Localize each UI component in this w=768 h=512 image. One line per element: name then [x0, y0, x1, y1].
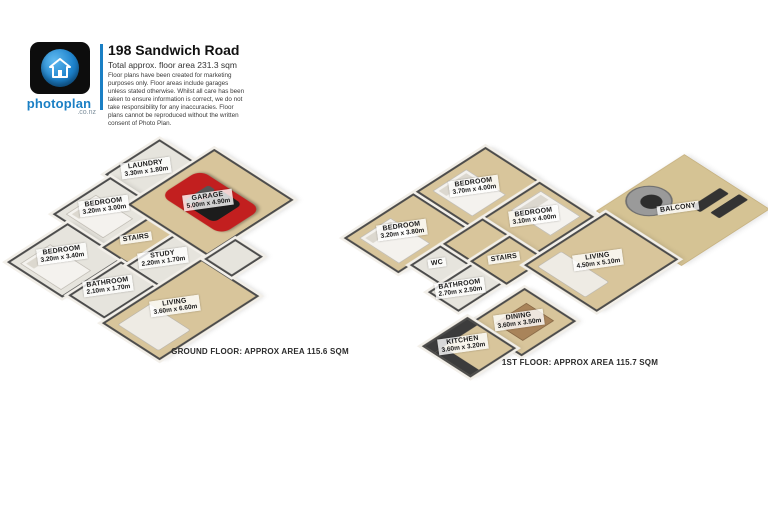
header-divider [100, 44, 103, 110]
first-floor-caption: 1ST FLOOR: APPROX AREA 115.7 SQM [430, 358, 730, 367]
floorplan-sheet: photoplan .co.nz 198 Sandwich Road Total… [0, 0, 768, 512]
photoplan-logo [30, 42, 90, 94]
ground-floor-plane [0, 126, 348, 358]
page-title: 198 Sandwich Road [108, 42, 239, 58]
logo-circle [41, 49, 79, 87]
total-area-subtitle: Total approx. floor area 231.3 sqm [108, 60, 237, 70]
ground-floor-caption: GROUND FLOOR: APPROX AREA 115.6 SQM [120, 347, 400, 356]
ground-floor-plan [8, 102, 328, 382]
house-icon [49, 58, 71, 78]
